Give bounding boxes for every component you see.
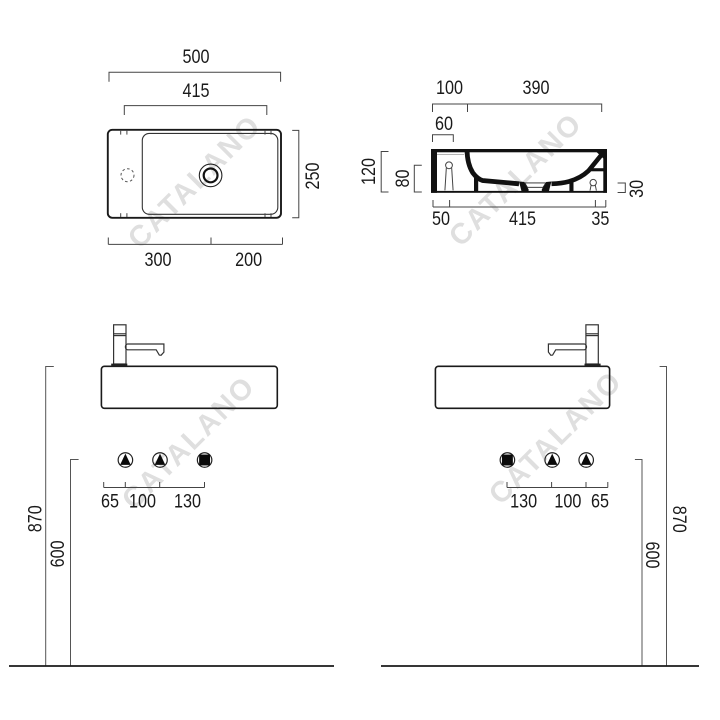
svg-text:200: 200: [235, 250, 262, 271]
svg-text:390: 390: [523, 78, 550, 99]
svg-text:65: 65: [591, 492, 609, 513]
svg-text:100: 100: [436, 78, 463, 99]
svg-text:50: 50: [432, 209, 450, 230]
svg-text:415: 415: [509, 209, 536, 230]
svg-text:100: 100: [554, 492, 581, 513]
svg-text:35: 35: [591, 209, 609, 230]
svg-text:130: 130: [510, 492, 537, 513]
svg-text:80: 80: [393, 170, 414, 188]
svg-text:130: 130: [174, 492, 201, 513]
svg-text:415: 415: [183, 81, 210, 102]
svg-text:100: 100: [129, 492, 156, 513]
svg-text:870: 870: [26, 505, 47, 532]
svg-text:870: 870: [668, 506, 689, 533]
svg-text:250: 250: [303, 163, 324, 190]
svg-text:60: 60: [435, 114, 453, 135]
svg-text:500: 500: [183, 47, 210, 68]
svg-text:300: 300: [145, 250, 172, 271]
svg-text:120: 120: [359, 158, 380, 185]
svg-text:30: 30: [627, 180, 648, 198]
svg-text:65: 65: [101, 492, 119, 513]
svg-text:600: 600: [641, 542, 662, 569]
svg-text:600: 600: [48, 540, 69, 567]
